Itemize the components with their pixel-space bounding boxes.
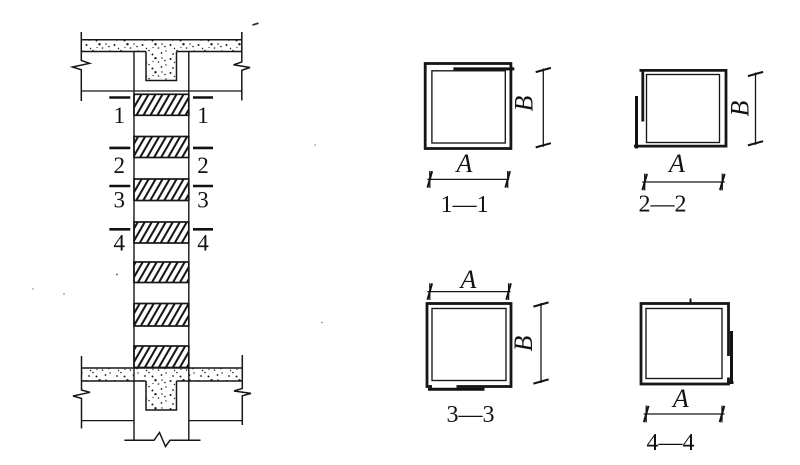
- svg-text:B: B: [510, 95, 539, 111]
- svg-text:2: 2: [114, 153, 126, 178]
- svg-text:1: 1: [197, 103, 209, 128]
- svg-text:B: B: [726, 100, 755, 116]
- svg-text:4: 4: [197, 231, 209, 256]
- svg-text:A: A: [667, 149, 685, 178]
- svg-text:A: A: [458, 265, 476, 294]
- svg-text:4: 4: [114, 231, 126, 256]
- svg-text:1: 1: [114, 103, 126, 128]
- svg-text:3—3: 3—3: [447, 402, 495, 428]
- svg-text:3: 3: [114, 188, 126, 213]
- svg-text:4—4: 4—4: [647, 430, 695, 456]
- svg-text:B: B: [509, 336, 538, 352]
- svg-text:A: A: [455, 149, 473, 178]
- svg-text:3: 3: [197, 188, 209, 213]
- svg-text:2: 2: [197, 153, 209, 178]
- svg-text:2—2: 2—2: [639, 192, 687, 218]
- svg-text:A: A: [671, 384, 689, 413]
- svg-text:1—1: 1—1: [441, 192, 489, 218]
